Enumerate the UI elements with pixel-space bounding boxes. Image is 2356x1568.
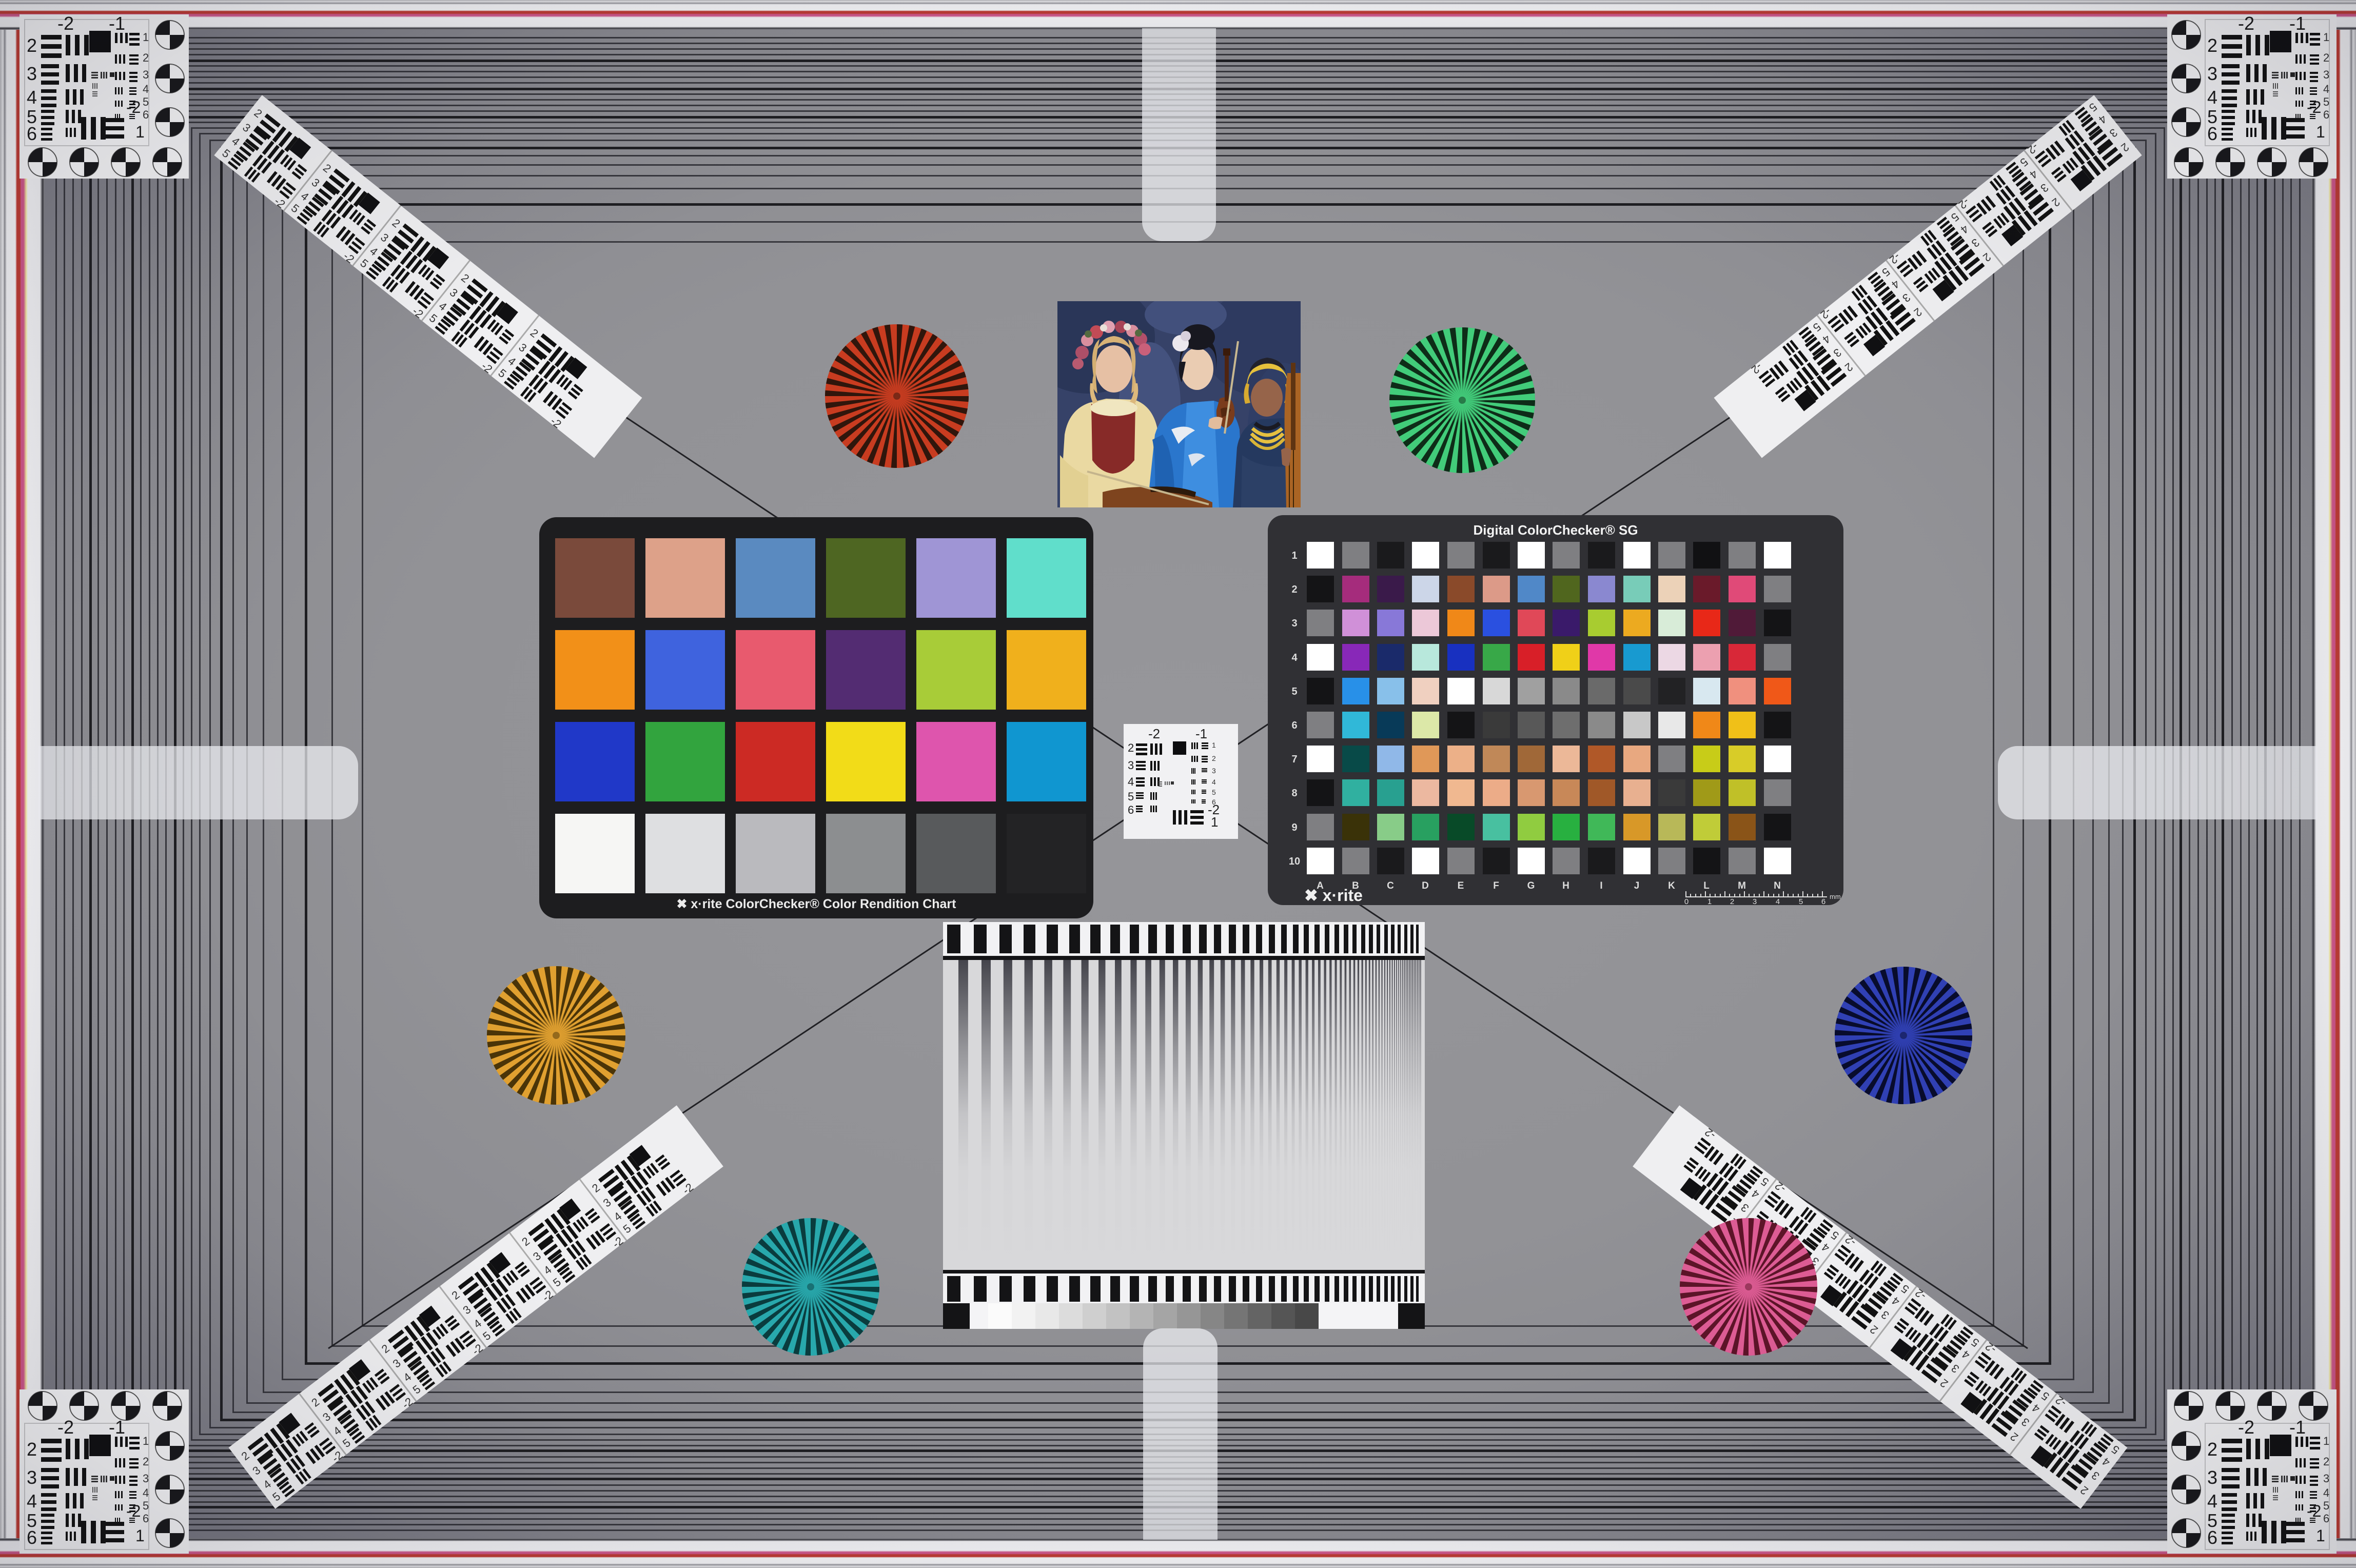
svg-text:6: 6 [1128,803,1134,816]
svg-text:7: 7 [1291,754,1297,765]
svg-text:3: 3 [1753,897,1757,906]
svg-text:D: D [1422,880,1429,891]
svg-text:2: 2 [1291,584,1297,595]
svg-text:L: L [1703,880,1710,891]
svg-text:9: 9 [1291,822,1297,833]
svg-text:4: 4 [1776,897,1780,906]
svg-text:J: J [1634,880,1640,891]
svg-text:Digital ColorChecker® SG: Digital ColorChecker® SG [1473,522,1638,538]
svg-text:10: 10 [1289,856,1300,867]
svg-text:5: 5 [1212,788,1216,796]
svg-text:1: 1 [1291,550,1297,561]
svg-text:4: 4 [1212,778,1216,786]
svg-text:✖ x·rite ColorChecker® Color R: ✖ x·rite ColorChecker® Color Rendition C… [677,897,957,911]
svg-text:M: M [1738,880,1746,891]
svg-text:4: 4 [1291,652,1298,663]
svg-text:I: I [1600,880,1602,891]
svg-text:5: 5 [1291,686,1297,697]
svg-text:3: 3 [1128,759,1134,772]
svg-text:✖ x·rite: ✖ x·rite [1304,886,1363,905]
svg-text:1: 1 [1211,814,1218,830]
svg-text:3: 3 [1291,618,1297,629]
svg-text:2: 2 [1730,897,1734,906]
svg-text:2: 2 [1128,741,1134,754]
svg-text:F: F [1493,880,1499,891]
svg-text:3: 3 [1212,767,1216,775]
svg-text:K: K [1668,880,1675,891]
svg-text:6: 6 [1821,897,1825,906]
svg-text:4: 4 [1128,775,1134,788]
svg-text:5: 5 [1799,897,1803,906]
svg-text:H: H [1562,880,1569,891]
svg-text:1: 1 [1707,897,1712,906]
svg-text:-1: -1 [1195,726,1207,741]
svg-text:mm: mm [1830,893,1841,900]
svg-text:G: G [1527,880,1535,891]
svg-text:C: C [1387,880,1394,891]
svg-text:2: 2 [1212,754,1216,762]
svg-text:0: 0 [1684,897,1689,906]
svg-text:6: 6 [1291,720,1297,731]
svg-text:1: 1 [1212,741,1216,749]
svg-text:5: 5 [1128,790,1134,803]
svg-text:E: E [1458,880,1464,891]
svg-text:N: N [1774,880,1781,891]
svg-text:-2: -2 [1148,726,1160,741]
svg-text:8: 8 [1291,788,1297,799]
